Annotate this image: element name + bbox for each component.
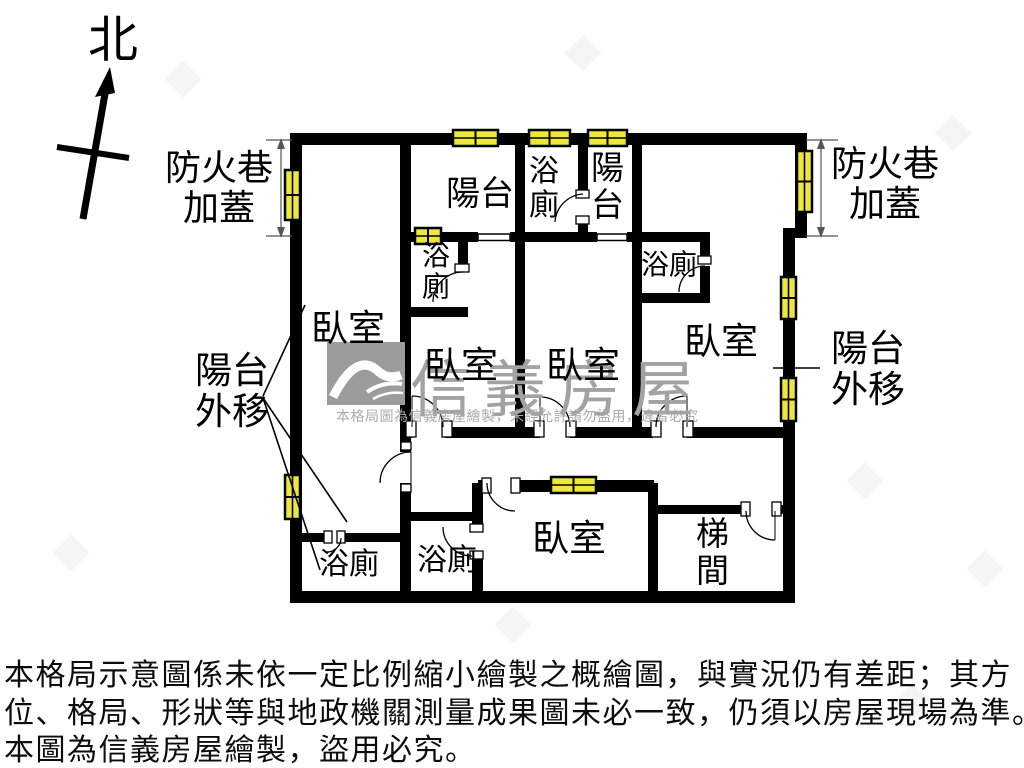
room-bedroom3: 臥室 [546,346,620,387]
floor-plan-page: 信義房屋 本格局圖為信義房屋繪製，未經允許請勿盜用，違者必究 北 防火巷 加蓋 … [0,0,1024,768]
room-bath-top: 浴 廁 [529,155,559,222]
room-bedroom-bottom: 臥室 [532,519,606,560]
north-arrow-icon [57,67,129,219]
room-bath-bottom-left: 浴廁 [319,548,379,582]
watermark-notice: 本格局圖為信義房屋繪製，未經允許請勿盜用，違者必究 [336,406,699,426]
room-bath-small: 浴 廁 [422,241,450,304]
compass-north-label: 北 [88,12,138,68]
room-bedroom2: 臥室 [424,346,498,387]
fire-lane-left-label: 防火巷 加蓋 [158,148,280,229]
room-bath-bottom-mid: 浴廁 [417,544,477,578]
room-balcony-top-right: 陽 台 [591,151,624,225]
sinyi-logo-icon [327,342,405,405]
room-stairwell: 梯 間 [696,517,729,591]
disclaimer-line-3: 本圖為信義房屋繪製，盜用必究。 [4,725,477,768]
fire-lane-right-label: 防火巷 加蓋 [822,144,948,225]
room-bedroom1: 臥室 [311,309,385,350]
balcony-moved-right-label: 陽台 外移 [812,329,924,412]
room-bath-bedroom4: 浴廁 [641,250,697,281]
room-balcony-top: 陽台 [446,176,514,214]
balcony-moved-left-label: 陽台 外移 [176,351,288,434]
room-bedroom4: 臥室 [684,322,758,363]
